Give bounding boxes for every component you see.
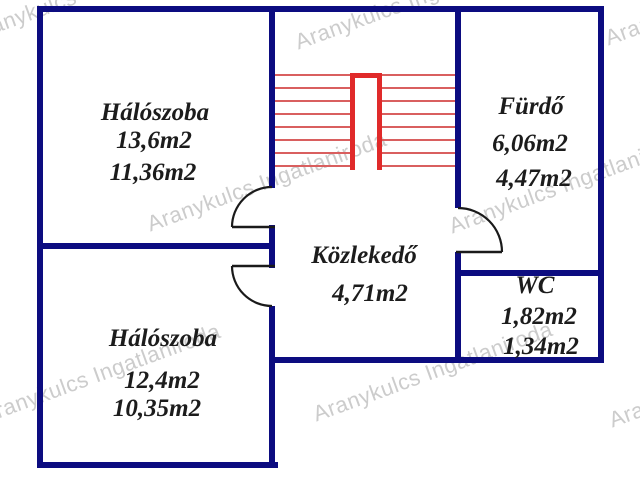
watermark-text: Aranykulcs Ingatlaniroda (602, 0, 640, 51)
room-area-net: 4,47m2 (424, 163, 640, 195)
stair-tread (382, 87, 455, 89)
room-name-bathroom: Fürdő (421, 91, 640, 123)
stair-tread (275, 152, 350, 154)
wall-outer-left (37, 6, 43, 468)
stair-handrail-left (350, 73, 355, 170)
room-name-wc: WC (425, 270, 640, 302)
stair-tread (275, 74, 350, 76)
stair-tread (275, 113, 350, 115)
room-area-gross: 6,06m2 (420, 128, 640, 160)
room-area-gross: 13,6m2 (44, 125, 264, 157)
stair-handrail-right (377, 73, 382, 170)
room-name-bedroom-bottom: Hálószoba (53, 323, 273, 355)
wall-outer-top (37, 6, 604, 12)
stair-tread (275, 139, 350, 141)
stair-tread (275, 87, 350, 89)
room-name-hallway: Közlekedő (254, 240, 474, 272)
room-area-gross: 1,82m2 (429, 301, 640, 333)
room-area-net: 1,34m2 (431, 331, 640, 363)
floor-plan: Aranykulcs Ingatlaniroda Aranykulcs Inga… (0, 0, 640, 480)
stair-tread (382, 74, 455, 76)
stair-handrail-top (350, 73, 382, 78)
wall-bedroom-bottom (37, 462, 278, 468)
stair-tread (275, 100, 350, 102)
stair-tread (275, 126, 350, 128)
wall-bedroom-divider (37, 243, 275, 249)
room-area-net: 11,36m2 (43, 157, 263, 189)
room-area-net: 10,35m2 (47, 393, 267, 425)
wall-stairwell-left-upper (269, 6, 275, 188)
stair-tread (275, 165, 350, 167)
